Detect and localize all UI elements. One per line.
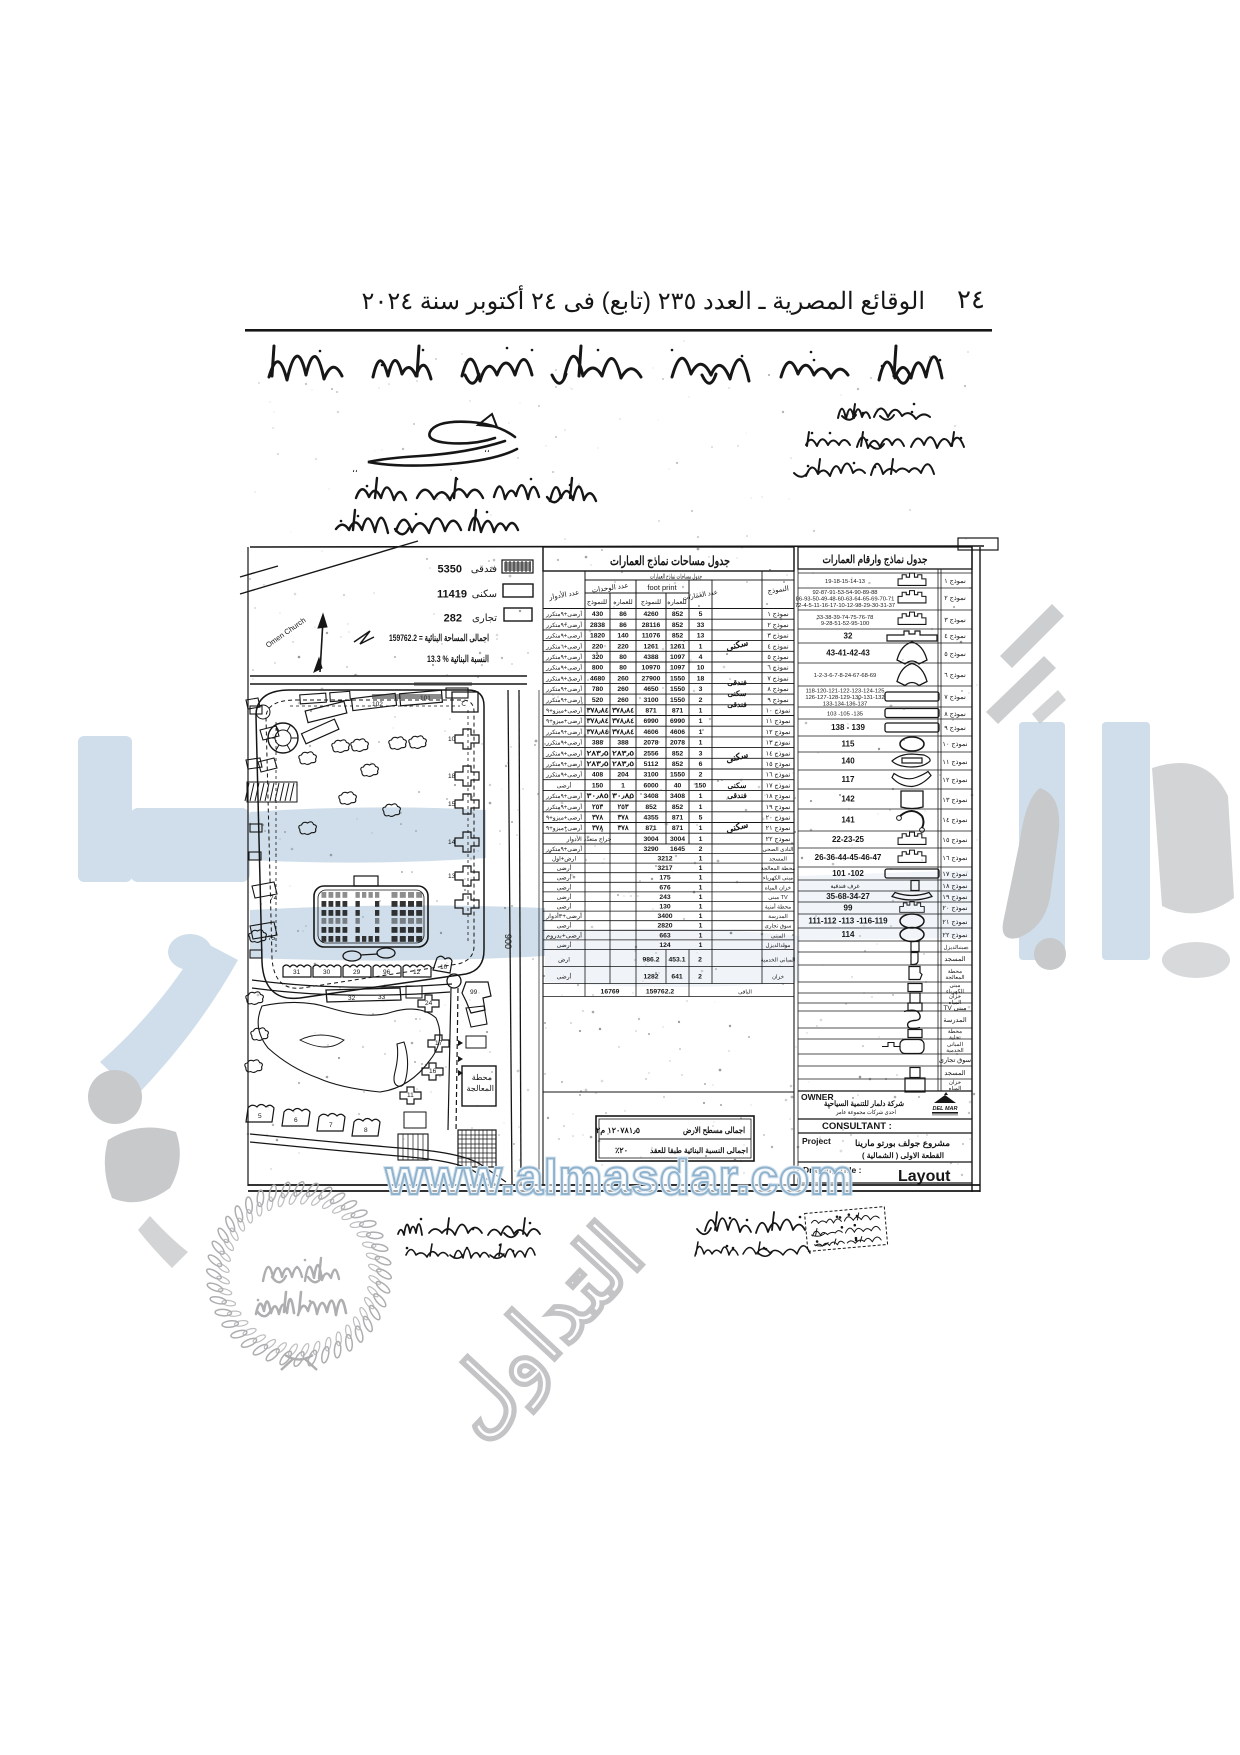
svg-text:أرضى: أرضى [557,873,572,882]
svg-text:نموذج ٦: نموذج ٦ [944,672,966,679]
svg-text:فندقى: فندقى [727,791,747,800]
svg-text:10: 10 [448,736,456,743]
svg-text:852: 852 [672,622,684,629]
svg-text:142: 142 [841,795,855,804]
svg-text:أرضى: أرضى [557,921,572,930]
svg-text:الوقائع المصرية ـ العدد ٢٣٥ (ت: الوقائع المصرية ـ العدد ٢٣٥ (تابع) فى ٢٤… [362,284,925,315]
svg-text:محطة أمنية: محطة أمنية [765,902,791,911]
svg-text:سكنى: سكنى [472,589,497,600]
svg-text:800: 800 [592,665,604,672]
svg-text:أرضى: أرضى [557,882,572,891]
svg-text:133-134-136-137: 133-134-136-137 [823,701,867,707]
svg-text:نموذج ٥: نموذج ٥ [767,654,789,661]
svg-text:تحلية: تحلية [949,1034,961,1041]
svg-text:نموذج ٢٢: نموذج ٢٢ [942,932,967,939]
svg-text:نموذج ١٥: نموذج ١٥ [942,837,967,844]
svg-text:130: 130 [659,904,671,911]
svg-text:12: 12 [413,969,421,976]
svg-text:٣٧٨: ٣٧٨ [592,815,603,822]
svg-text:1: 1 [699,856,703,863]
svg-text:أرضى+ميزو+٩: أرضى+ميزو+٩ [546,823,582,832]
svg-text:852: 852 [645,804,657,811]
svg-text:جراج متعدد الأدوار: جراج متعدد الأدوار [566,834,612,843]
svg-text:175: 175 [659,875,671,882]
svg-text:103 -105 -135: 103 -105 -135 [827,712,863,718]
svg-text:1: 1 [699,932,703,939]
svg-text:871: 871 [645,708,657,715]
svg-text:1550: 1550 [670,675,685,682]
svg-text:102: 102 [372,701,383,708]
svg-text:3004: 3004 [670,836,685,843]
svg-text:16: 16 [429,1068,437,1075]
svg-text:260: 260 [617,686,629,693]
svg-text:11419: 11419 [437,589,467,601]
svg-text:10970: 10970 [642,665,661,672]
svg-text:4650: 4650 [643,686,658,693]
svg-text:1: 1 [699,923,703,930]
svg-text:13: 13 [448,873,456,880]
svg-text:320: 320 [592,654,604,661]
svg-text:نموذج ١١: نموذج ١١ [766,718,791,725]
svg-text:خزان: خزان [949,993,962,1000]
svg-text:أرضى+٩متكرر: أرضى+٩متكرر [545,631,582,640]
svg-text:5: 5 [699,611,703,618]
svg-text:30: 30 [323,969,331,976]
svg-text:3400: 3400 [657,913,672,920]
svg-text:نموذج ١٢: نموذج ١٢ [942,777,967,784]
svg-text:المدرسة: المدرسة [943,1016,967,1024]
svg-text:1: 1 [699,942,703,949]
svg-text:نموذج ١٩: نموذج ١٩ [942,894,967,901]
svg-text:118-120-121-122-123-124-125: 118-120-121-122-123-124-125 [806,689,885,695]
svg-text:4355: 4355 [643,815,658,822]
svg-text:٢٨٣٫٥: ٢٨٣٫٥ [587,750,609,757]
svg-text:35-68-34-27: 35-68-34-27 [826,892,870,901]
svg-text:اجمالى المساحة البنائية = 1597: اجمالى المساحة البنائية = 159762.2 [389,633,489,644]
svg-text:18: 18 [697,675,705,682]
svg-text:غرف فندقية: غرف فندقية [830,883,859,890]
svg-text:المعالجة: المعالجة [945,974,965,981]
svg-text:أرضى: أرضى [557,902,572,911]
svg-text:نموذج ٨: نموذج ٨ [944,711,966,718]
svg-text:خ: خ [461,699,466,706]
svg-text:19-18-15-14-13: 19-18-15-14-13 [825,579,865,585]
svg-text:احدى شركات مجموعة عامر: احدى شركات مجموعة عامر [835,1109,896,1116]
svg-text:خزان: خزان [772,974,785,981]
svg-text:1-2-3-6-7-8-24-67-68-69: 1-2-3-6-7-8-24-67-68-69 [814,673,877,679]
svg-text:22-23-25: 22-23-25 [832,835,865,844]
svg-text:أرضى+٩متكرر: أرضى+٩متكرر [545,609,582,618]
svg-text:،،: ،، [352,464,358,474]
svg-text:جدول مساحات نماذج العمارات: جدول مساحات نماذج العمارات [650,573,702,581]
svg-text:٣٠٫٨٥: ٣٠٫٨٥ [587,793,609,800]
svg-text:نموذج ١١: نموذج ١١ [942,759,967,766]
svg-text:محطة المعالجة: محطة المعالجة [761,865,795,872]
svg-text:نموذج ٢٢: نموذج ٢٢ [766,836,791,843]
svg-text:DEL MAR: DEL MAR [933,1106,958,1112]
svg-text:33-38-39-74-75-76-78: 33-38-39-74-75-76-78 [817,615,874,621]
svg-text:٢٨٣٫٥: ٢٨٣٫٥ [612,750,634,757]
svg-text:مولدالديزل: مولدالديزل [765,942,790,949]
svg-text:نموذج ١٣: نموذج ١٣ [942,797,967,804]
svg-text:أرضى+٩متكرر: أرضى+٩متكرر [545,663,582,672]
svg-text:نموذج ٢١: نموذج ٢١ [942,919,967,926]
svg-text:٣٧٨٫٨٤: ٣٧٨٫٨٤ [587,729,609,736]
svg-text:6: 6 [699,761,703,768]
svg-text:260: 260 [617,697,629,704]
svg-text:140: 140 [617,633,629,640]
svg-text:نموذج ٣: نموذج ٣ [944,617,966,624]
svg-text:نموذج ١٣: نموذج ١٣ [766,740,791,747]
svg-text:520: 520 [592,697,604,704]
svg-text:4680: 4680 [590,675,605,682]
svg-text:المبانى: المبانى [947,1041,964,1048]
svg-text:430: 430 [592,611,604,618]
svg-text:المعالجة: المعالجة [467,1084,494,1093]
svg-text:3290: 3290 [643,846,658,853]
svg-text:10: 10 [697,665,705,672]
svg-text:27900: 27900 [642,675,661,682]
svg-text:2: 2 [699,697,703,704]
svg-text:5112: 5112 [644,761,659,768]
svg-text:10: 10 [440,964,448,971]
svg-text:نموذج ٢: نموذج ٢ [944,595,966,602]
svg-text:1645: 1645 [670,846,685,853]
svg-text:1: 1 [699,904,703,911]
svg-text:24: 24 [425,1000,433,1007]
svg-text:86-93-50-49-48-60-63-64-65-69-: 86-93-50-49-48-60-63-64-65-69-70-71 [796,597,895,603]
svg-text:أرضى+ميزو+٩: أرضى+ميزو+٩ [546,706,582,715]
svg-text:2556: 2556 [643,750,658,757]
svg-text:جدول نماذج وارقام العمارات: جدول نماذج وارقام العمارات [823,554,928,566]
svg-text:3: 3 [699,750,703,757]
svg-text:1: 1 [699,913,703,920]
svg-text:١٢٠٧٨١٫٥ م٢: ١٢٠٧٨١٫٥ م٢ [596,1126,640,1136]
svg-text:80: 80 [619,654,627,661]
svg-text:13: 13 [697,633,705,640]
svg-text:2078: 2078 [643,740,658,747]
svg-text:٣٧٨٫٨٤: ٣٧٨٫٨٤ [612,729,634,736]
svg-text:نموذج ١٥: نموذج ١٥ [766,761,791,768]
svg-text:3004: 3004 [643,836,658,843]
svg-text:1: 1 [699,884,703,891]
svg-text:نموذج ١٢: نموذج ١٢ [766,729,791,736]
svg-text:2838: 2838 [590,622,605,629]
svg-text:1: 1 [699,865,703,872]
svg-text:نموذج ١٨: نموذج ١٨ [766,793,791,800]
svg-text:نموذج ١٨: نموذج ١٨ [942,883,967,890]
svg-text:نموذج ١٤: نموذج ١٤ [942,817,967,824]
svg-text:18: 18 [448,773,456,780]
svg-text:150: 150 [592,782,604,789]
svg-text:النسبة البنائية % 13.3: النسبة البنائية % 13.3 [427,654,489,665]
svg-text:86: 86 [619,622,627,629]
svg-text:نموذج ١٩: نموذج ١٩ [766,804,791,811]
svg-text:28116: 28116 [642,622,661,629]
svg-text:5: 5 [258,1113,262,1120]
svg-text:3100: 3100 [643,697,658,704]
svg-text:أرضى+٩متكرر: أرضى+٩متكرر [545,748,582,757]
svg-text:٣٧٨: ٣٧٨ [618,825,629,832]
svg-text:نموذج ١٠: نموذج ١٠ [942,741,967,748]
svg-text:نموذج ٣: نموذج ٣ [767,633,789,640]
svg-text:6: 6 [294,1117,298,1124]
svg-text:أرضى+٩متكرر: أرضى+٩متكرر [545,620,582,629]
svg-text:150: 150 [695,782,707,789]
svg-text:محطة: محطة [948,1028,962,1035]
svg-text:ارض: ارض [558,957,570,964]
svg-text:80: 80 [619,665,627,672]
svg-text:أرضى: أرضى [557,780,572,789]
svg-text:1: 1 [699,643,703,650]
svg-text:القطعة الاولى ( الشمالية ): القطعة الاولى ( الشمالية ) [862,1151,944,1161]
svg-text:٣٧٨٫٨٤: ٣٧٨٫٨٤ [612,708,634,715]
svg-text:أرضى+٩متكرر: أرضى+٩متكرر [545,727,582,736]
svg-text:جدول مساحات نماذج العمارات: جدول مساحات نماذج العمارات [610,554,730,569]
svg-text:1: 1 [699,708,703,715]
svg-text:٣٧٨٫٨٤: ٣٧٨٫٨٤ [612,718,634,725]
svg-text:16769: 16769 [601,989,620,996]
svg-text:1097: 1097 [670,654,685,661]
svg-text:أرضى+ميزو+٩: أرضى+ميزو+٩ [546,813,582,822]
svg-text:96: 96 [383,969,391,976]
svg-text:101 -102: 101 -102 [832,869,864,878]
svg-text:3408: 3408 [670,793,685,800]
svg-text:780: 780 [592,686,604,693]
svg-text:سكنى: سكنى [728,689,748,698]
svg-text:أرضى+ميزو+٩: أرضى+ميزو+٩ [546,716,582,725]
svg-text:115: 115 [842,740,855,749]
svg-text:أرضى+٣أدوار: أرضى+٣أدوار [545,911,582,920]
svg-text:مبنىالديزل: مبنىالديزل [943,944,966,951]
svg-text:للعماره: للعماره [613,598,633,606]
svg-text:نموذج ١٠: نموذج ١٠ [766,708,791,715]
svg-text:852: 852 [672,750,684,757]
svg-text:نموذج ٩: نموذج ٩ [944,725,966,732]
svg-text:شركة دلمار للتنمية السياحية: شركة دلمار للتنمية السياحية [824,1099,905,1109]
svg-text:نموذج ١٦: نموذج ١٦ [766,772,791,779]
svg-text:6000: 6000 [643,782,658,789]
svg-text:سوق تجارى: سوق تجارى [939,1056,972,1064]
svg-text:مبنى TV: مبنى TV [943,1005,967,1012]
svg-text:26-36-44-45-46-47: 26-36-44-45-46-47 [815,853,882,862]
svg-text:مبنى الكهرباء: مبنى الكهرباء [763,875,793,882]
svg-text:852: 852 [672,611,684,618]
svg-text:676: 676 [659,884,671,891]
svg-text:3212: 3212 [657,856,672,863]
svg-text:2: 2 [699,772,703,779]
svg-text:نموذج ٩: نموذج ٩ [767,697,789,704]
svg-text:282: 282 [444,613,462,625]
svg-text:٢٨٣٫٥: ٢٨٣٫٥ [587,761,609,768]
svg-text:النموذج: النموذج [767,585,789,596]
svg-text:نموذج ٥: نموذج ٥ [944,651,966,658]
svg-text:4388: 4388 [643,654,658,661]
svg-text:أرضى+٩متكرر: أرضى+٩متكرر [545,770,582,779]
svg-text:سكنى: سكنى [725,749,749,764]
svg-text:CONSULTANT :: CONSULTANT : [822,1121,892,1132]
svg-text:72-4-5-11-16-17-10-12-98-29-30: 72-4-5-11-16-17-10-12-98-29-30-31-37 [795,603,895,609]
svg-text:126-127-128-129-130-131-132: 126-127-128-129-130-131-132 [805,695,884,701]
svg-text:1: 1 [699,740,703,747]
svg-text:260: 260 [617,675,629,682]
svg-text:نموذج ٤: نموذج ٤ [767,643,789,650]
svg-text:141: 141 [841,816,855,825]
svg-text:نموذج ٨: نموذج ٨ [767,686,789,693]
svg-text:11: 11 [407,1092,414,1099]
svg-text:9-28-51-52-95-100: 9-28-51-52-95-100 [821,621,869,627]
svg-text:خزان: خزان [949,1079,962,1086]
svg-text:نموذج ٧: نموذج ٧ [767,675,789,682]
svg-text:،،: ،، [484,444,490,454]
svg-text:أرضى+٦متكرر: أرضى+٦متكرر [545,641,582,650]
svg-text:سوق تجارى: سوق تجارى [765,923,792,930]
svg-text:٣٧٨: ٣٧٨ [618,815,629,822]
svg-text:Omen Church: Omen Church [264,615,307,649]
svg-text:31: 31 [293,969,301,976]
svg-text:اجمالى مسطح الارض: اجمالى مسطح الارض [683,1125,745,1136]
svg-text:المسجد: المسجد [769,856,787,863]
svg-text:2820: 2820 [657,923,672,930]
svg-text:1: 1 [699,804,703,811]
svg-text:أرضى+٩متكرر: أرضى+٩متكرر [545,684,582,693]
svg-text:المسجد: المسجد [944,1069,965,1077]
svg-text:124: 124 [659,942,671,949]
svg-text:7: 7 [329,1122,333,1129]
svg-text:للنموذج: للنموذج [641,598,661,606]
svg-text:نموذج ٤: نموذج ٤ [944,633,966,640]
svg-text:2078: 2078 [670,740,685,747]
svg-text:نموذج ١: نموذج ١ [944,578,966,585]
svg-text:1: 1 [621,782,625,789]
svg-text:نموذج ٢٠: نموذج ٢٠ [766,815,791,822]
svg-text:النادى الصحى: النادى الصحى [763,846,794,853]
svg-text:تجارى: تجارى [472,613,497,624]
svg-text:أرضى: أرضى [557,892,572,901]
svg-text:أرضى+٩متكرر: أرضى+٩متكرر [545,759,582,768]
svg-text:1: 1 [699,875,703,882]
svg-text:6990: 6990 [643,718,658,725]
svg-text:159762.2: 159762.2 [646,989,675,996]
svg-text:220: 220 [617,643,629,650]
svg-text:نموذج ٢٠: نموذج ٢٠ [942,905,967,912]
svg-text:3: 3 [699,686,703,693]
svg-text:نموذج ١٤: نموذج ١٤ [766,750,791,757]
svg-text:4606: 4606 [670,729,685,736]
svg-text:سكنى: سكنى [728,781,748,790]
svg-text:663: 663 [659,932,671,939]
svg-text:نموذج ١٧: نموذج ١٧ [766,782,791,789]
svg-text:17: 17 [435,1040,443,1047]
svg-text:204: 204 [617,772,629,779]
svg-text:1261: 1261 [670,643,685,650]
svg-text:74: 74 [270,895,278,902]
svg-text:3100: 3100 [643,772,658,779]
svg-text:محطة: محطة [948,968,962,975]
svg-text:أرضى+٩متكرر: أرضى+٩متكرر [545,695,582,704]
svg-text:871: 871 [672,825,684,832]
svg-text:نموذج ٧: نموذج ٧ [944,694,966,701]
svg-text:٢٨٣٫٥: ٢٨٣٫٥ [612,761,634,768]
svg-text:سكنى: سكنى [725,819,749,834]
svg-text:foot print: foot print [647,583,677,592]
svg-text:1550: 1550 [670,697,685,704]
svg-text:فندقى: فندقى [471,564,497,575]
svg-text:1: 1 [699,825,703,832]
svg-text:2: 2 [698,957,702,964]
svg-text:٢٤: ٢٤ [957,284,985,314]
svg-text:المسجد: المسجد [944,955,965,963]
svg-text:محطة: محطة [472,1073,492,1082]
svg-text:3408: 3408 [643,793,658,800]
svg-text:أرضى+٩متكرر: أرضى+٩متكرر [545,738,582,747]
svg-text:٢٥٣: ٢٥٣ [618,804,629,811]
svg-text:٣٧٨٫٨٤: ٣٧٨٫٨٤ [587,708,609,715]
svg-text:43-41-42-43: 43-41-42-43 [826,649,870,658]
svg-text:مبنى TV: مبنى TV [768,895,788,901]
svg-text:أرضى+٩متكرر: أرضى+٩متكرر [545,673,582,682]
svg-text:4: 4 [699,654,703,661]
svg-text:4260: 4260 [643,611,658,618]
svg-text:المبنى: المبنى [771,932,786,939]
svg-text:40: 40 [674,782,682,789]
svg-text:117: 117 [842,775,855,784]
svg-text:220: 220 [592,643,604,650]
svg-text:أرضى+٩متكرر: أرضى+٩متكرر [545,791,582,800]
svg-text:نموذج ٦: نموذج ٦ [767,665,789,672]
svg-text:للعماره: للعماره [667,598,687,606]
svg-text:٢٥٣: ٢٥٣ [592,804,603,811]
svg-text:ارض+اول: ارض+اول [552,856,577,863]
svg-text:388: 388 [617,740,629,747]
svg-text:641: 641 [671,974,683,981]
svg-text:33: 33 [697,622,705,629]
svg-text:Layout: Layout [898,1168,951,1185]
svg-text:1: 1 [699,793,703,800]
svg-text:أرضى+٩متكرر: أرضى+٩متكرر [545,802,582,811]
svg-text:14: 14 [448,839,456,846]
svg-text:6990: 6990 [670,718,685,725]
svg-text:1550: 1550 [670,772,685,779]
svg-text:99: 99 [844,904,853,913]
svg-text:نموذج ٢١: نموذج ٢١ [766,825,791,832]
svg-text:140: 140 [841,757,855,766]
svg-text:3217: 3217 [657,865,672,872]
svg-text:الباقى: الباقى [738,989,752,996]
svg-text:Project: Project [802,1136,831,1146]
svg-text:408: 408 [592,772,604,779]
svg-text:سكنى: سكنى [725,637,749,652]
svg-text:32: 32 [348,995,356,1002]
svg-text:1097: 1097 [670,665,685,672]
svg-text:عدد العمارات: عدد العمارات [682,588,719,602]
svg-text:453.1: 453.1 [668,957,685,964]
svg-text:388: 388 [592,740,604,747]
svg-text:871: 871 [645,825,657,832]
svg-text:75: 75 [268,935,276,942]
svg-text:2: 2 [698,974,702,981]
svg-text:www.almasdar.com: www.almasdar.com [385,1151,855,1205]
svg-text:86: 86 [619,611,627,618]
svg-text:التداول: التداول [422,1206,665,1456]
svg-text:243: 243 [659,894,671,901]
svg-text:852: 852 [672,761,684,768]
svg-text:الخدمية: الخدمية [946,1047,964,1054]
svg-text:32: 32 [844,632,853,641]
svg-text:33: 33 [378,994,386,1001]
svg-text:أرضى: أرضى [557,863,572,872]
svg-text:871: 871 [672,708,684,715]
